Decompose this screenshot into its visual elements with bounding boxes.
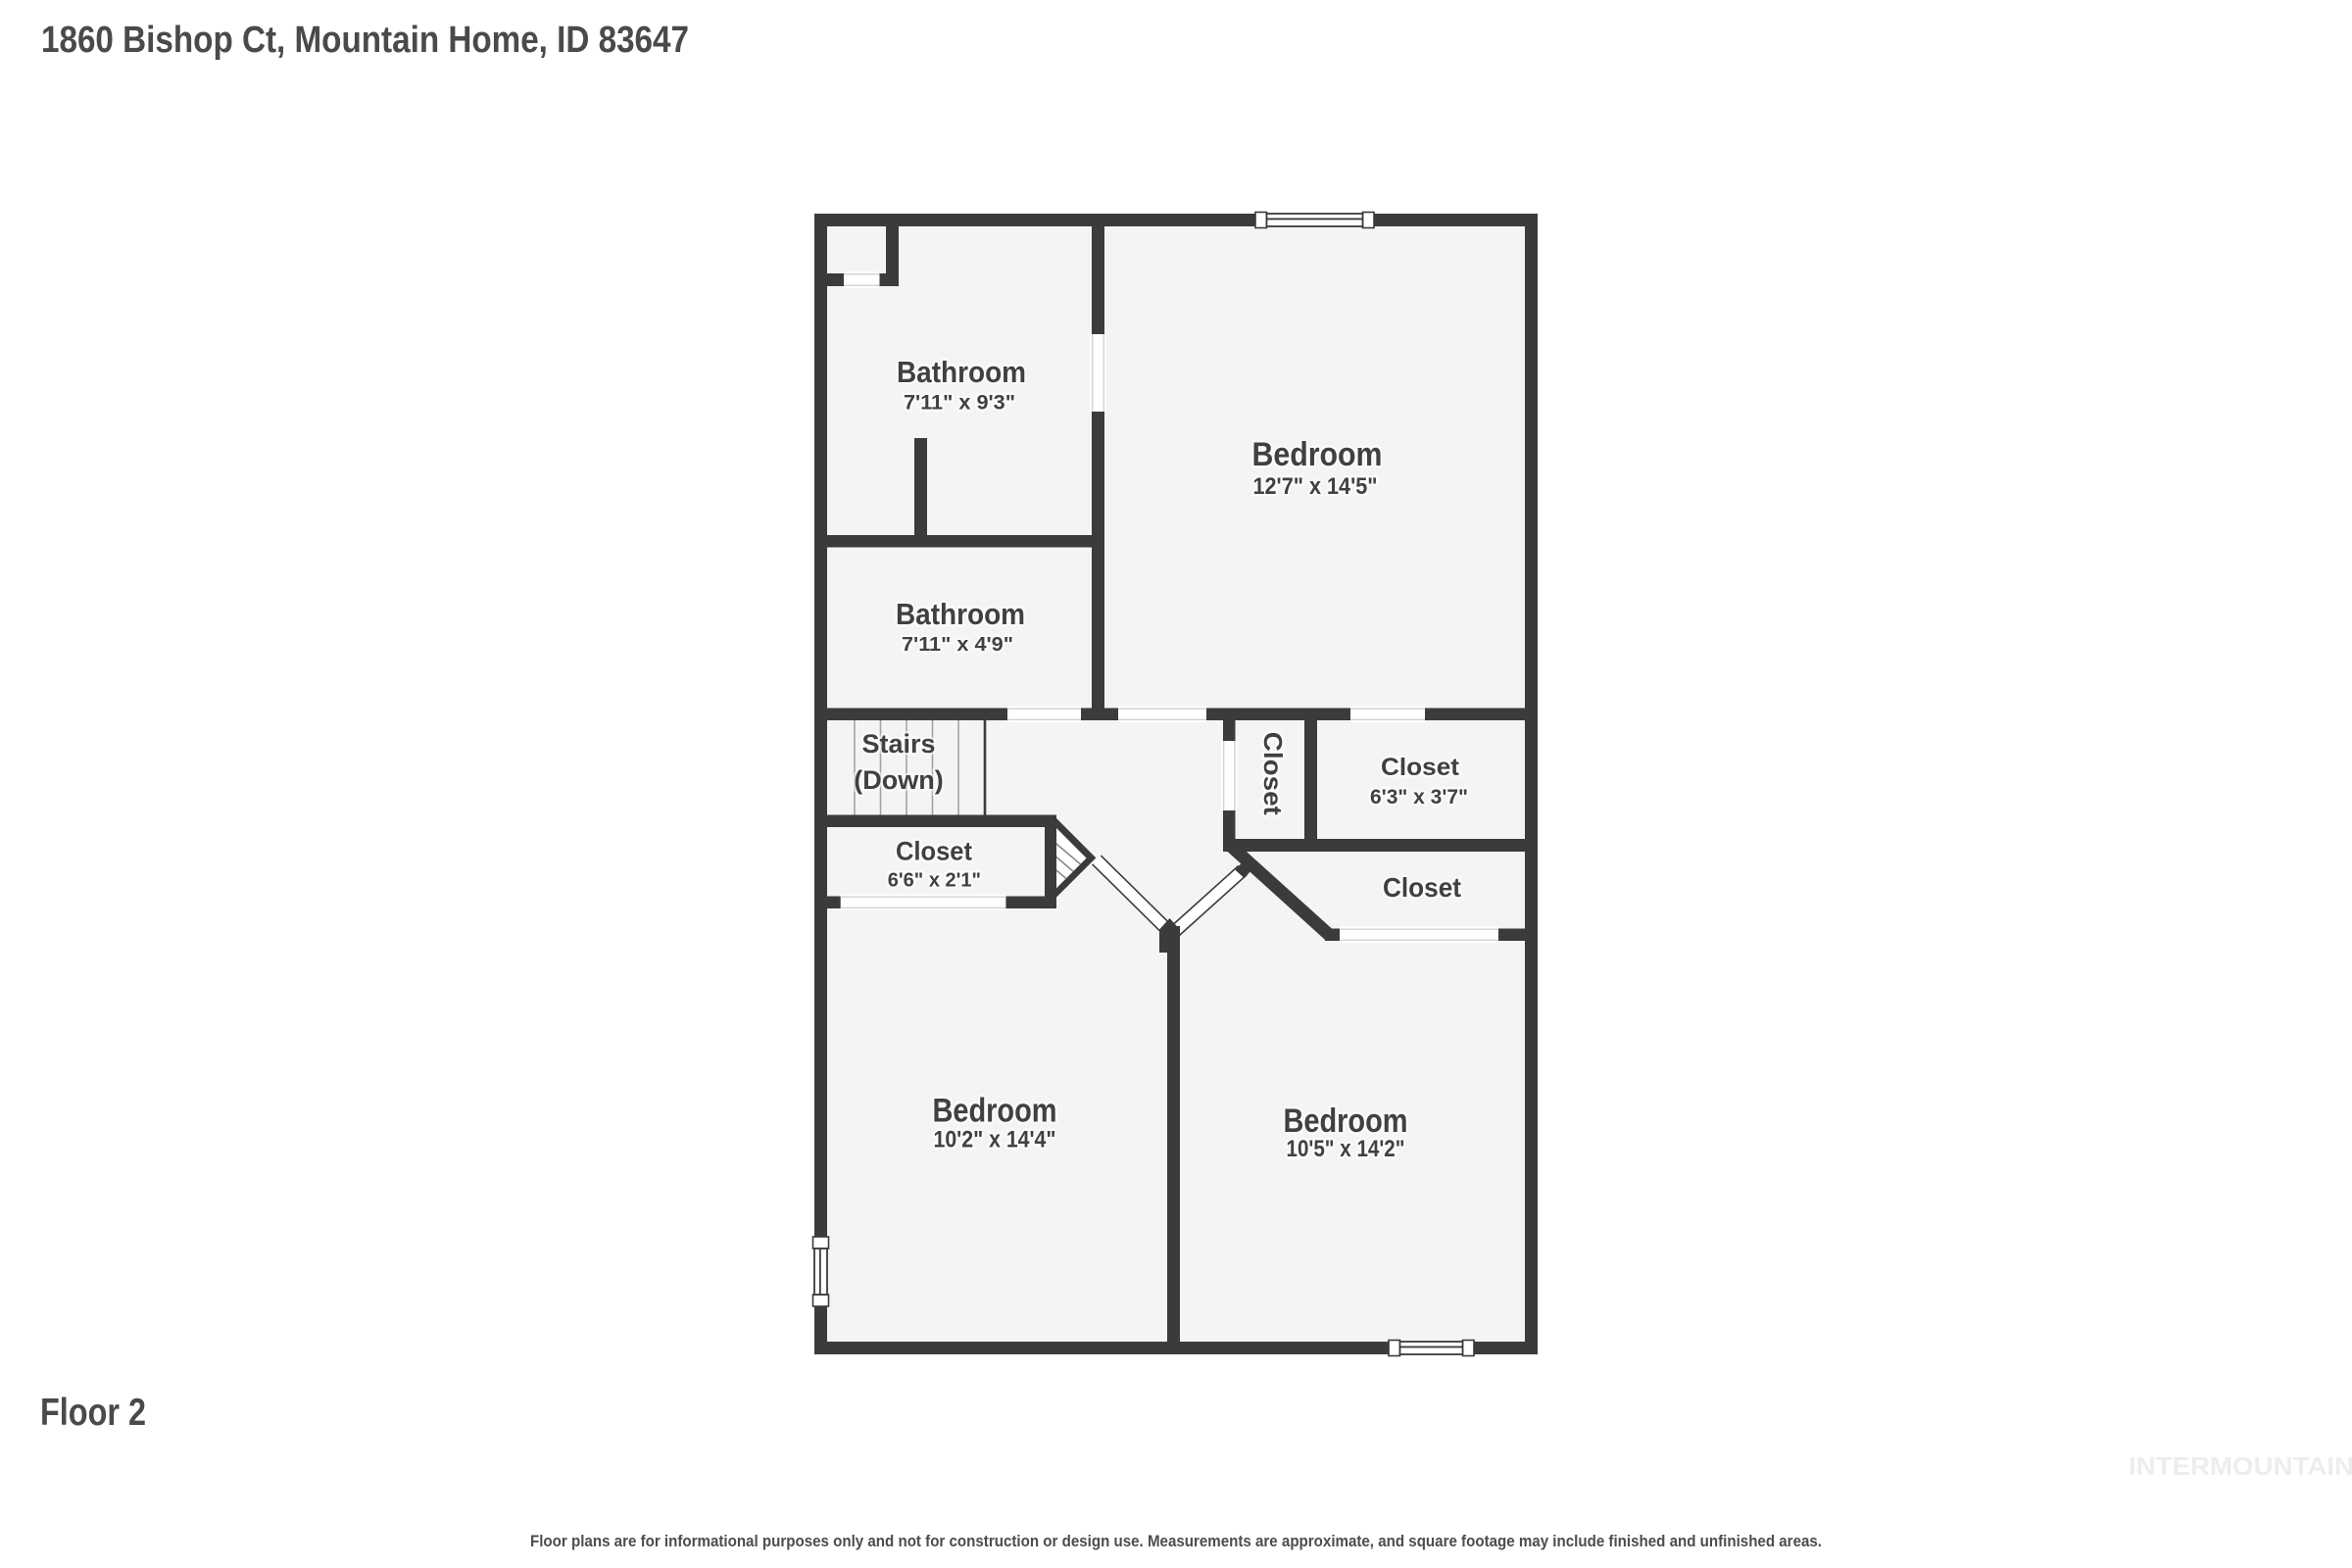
svg-text:10'2" x 14'4": 10'2" x 14'4": [934, 1127, 1056, 1153]
svg-text:INTERMOUNTAIN: INTERMOUNTAIN: [2129, 1451, 2352, 1481]
svg-text:Bedroom: Bedroom: [1252, 436, 1383, 473]
svg-text:12'7" x 14'5": 12'7" x 14'5": [1253, 473, 1378, 500]
svg-text:Bathroom: Bathroom: [896, 597, 1025, 631]
svg-text:Closet: Closet: [1383, 872, 1461, 903]
svg-text:Closet: Closet: [896, 837, 972, 866]
svg-text:Bathroom: Bathroom: [897, 355, 1026, 389]
svg-text:Floor plans are for informatio: Floor plans are for informational purpos…: [530, 1532, 1822, 1550]
svg-text:6'6" x 2'1": 6'6" x 2'1": [888, 870, 981, 892]
svg-text:7'11" x 4'9": 7'11" x 4'9": [902, 634, 1013, 656]
svg-text:Closet: Closet: [1381, 754, 1460, 781]
svg-text:1860 Bishop Ct, Mountain Home,: 1860 Bishop Ct, Mountain Home, ID 83647: [41, 20, 689, 61]
svg-text:Bedroom: Bedroom: [933, 1093, 1057, 1130]
svg-text:Closet: Closet: [1258, 732, 1288, 815]
svg-text:Stairs: Stairs: [861, 729, 935, 759]
svg-text:6'3" x 3'7": 6'3" x 3'7": [1370, 786, 1468, 808]
svg-text:Bedroom: Bedroom: [1284, 1102, 1408, 1140]
svg-text:7'11" x 9'3": 7'11" x 9'3": [904, 392, 1015, 415]
svg-text:(Down): (Down): [854, 765, 943, 795]
svg-text:10'5" x 14'2": 10'5" x 14'2": [1287, 1136, 1405, 1162]
svg-text:Floor 2: Floor 2: [40, 1392, 146, 1434]
